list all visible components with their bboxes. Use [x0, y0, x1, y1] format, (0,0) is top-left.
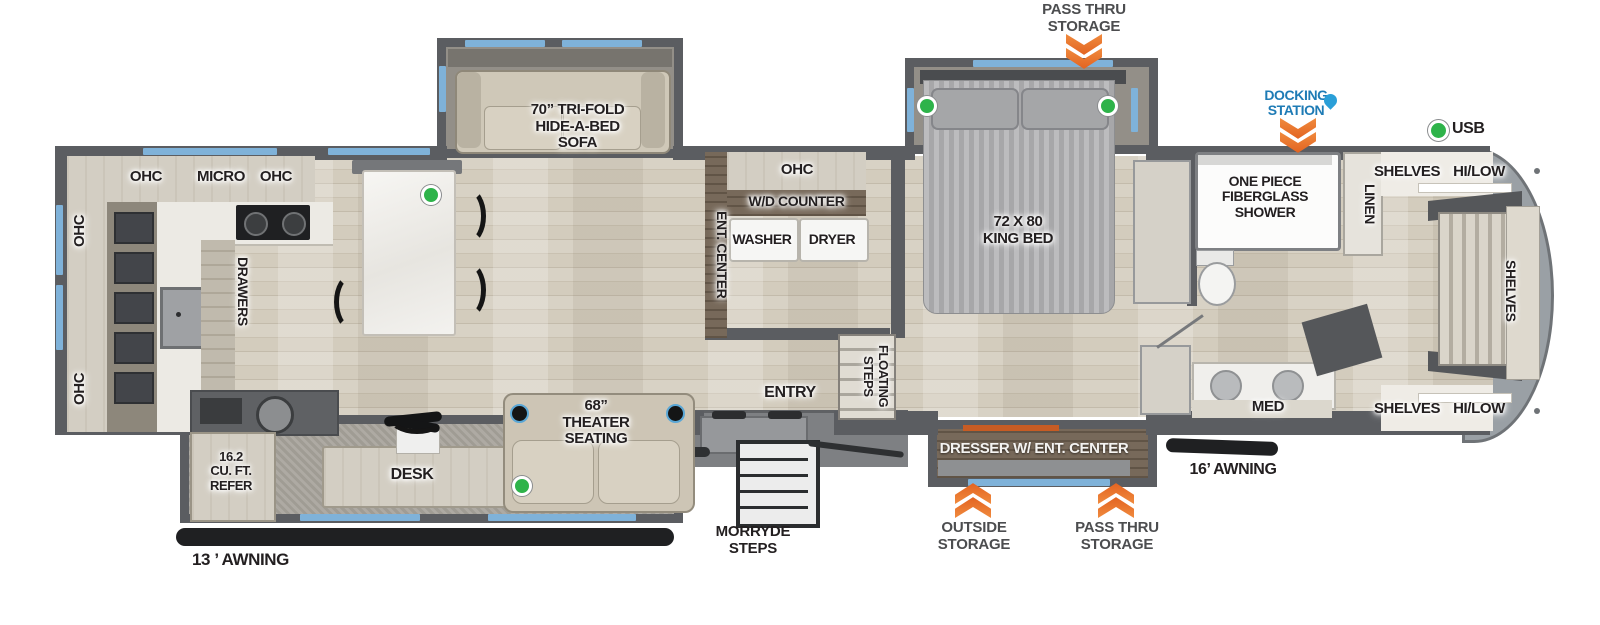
awning-16-bar: [1166, 438, 1278, 456]
drawer: [114, 212, 154, 244]
dresser-accent: [963, 425, 1059, 431]
bed-pillow-right: [1021, 88, 1109, 130]
pass-thru-top-arrow-icon: [1066, 34, 1102, 70]
usb-legend-dot: [1428, 120, 1449, 141]
bed-pillow-left: [931, 88, 1019, 130]
entry-tread: [712, 411, 746, 419]
bedroom-wardrobe-lower: [1140, 345, 1191, 415]
king-bed-label: 72 X 80 KING BED: [953, 214, 1083, 247]
step-tread: [740, 506, 808, 509]
bath-sink-left: [1210, 370, 1242, 402]
morryde-steps-cart: [736, 440, 820, 528]
awning-13-label: 13 ’ AWNING: [178, 551, 303, 570]
bar-stool: [334, 274, 368, 330]
hilow-bottom-label: HI/LOW: [1448, 401, 1510, 418]
drawers-label: DRAWERS: [226, 246, 250, 336]
cupholder-dot: [510, 404, 529, 423]
theater-label: 68” THEATER SEATING: [540, 398, 652, 448]
kitchen-ohc-right-label: OHC: [251, 169, 301, 186]
refer-label: 16.2 CU. FT. REFER: [192, 450, 270, 493]
floating-steps-label: FLOATING STEPS: [840, 336, 890, 416]
step-tread: [740, 474, 808, 477]
floorplan: 13 ’ AWNING 16’ AWNING 70” TRI-FOLD HIDE…: [0, 0, 1600, 625]
drawer: [114, 292, 154, 324]
awning-13-bar: [176, 528, 674, 546]
shower-label: ONE PIECE FIBERGLASS SHOWER: [1205, 174, 1325, 220]
drawer: [114, 332, 154, 364]
dresser-label: DRESSER W/ ENT. CENTER: [936, 441, 1132, 458]
usb-label: USB: [1452, 120, 1496, 138]
docking-station-arrow-icon: [1280, 118, 1316, 154]
shelves-mid-label: SHELVES: [1494, 248, 1518, 334]
hanging-rod-top: [1418, 183, 1512, 193]
kitchen-micro-label: MICRO: [189, 169, 253, 186]
usb-dot-bed-left: [917, 96, 937, 116]
bar-stool: [388, 400, 446, 434]
outside-storage-label: OUTSIDE STORAGE: [920, 520, 1028, 553]
shelves-top-label: SHELVES: [1372, 164, 1442, 181]
outside-storage-arrow-icon: [955, 482, 991, 518]
bar-stool: [452, 188, 486, 244]
step-tread: [740, 490, 808, 493]
cupholder-dot: [666, 404, 685, 423]
peninsula-griddle: [256, 396, 294, 434]
med-label: MED: [1238, 399, 1298, 416]
sofa-label: 70” TRI-FOLD HIDE-A-BED SOFA: [495, 102, 660, 152]
bar-stool: [452, 262, 486, 318]
kitchen-ohc-wall-upper-label: OHC: [72, 208, 102, 254]
awning-16-label: 16’ AWNING: [1178, 461, 1288, 479]
usb-dot-bed-right: [1098, 96, 1118, 116]
dryer-label: DRYER: [800, 232, 864, 247]
sofa-armrest-left: [457, 72, 481, 148]
range-burner-right: [282, 212, 306, 236]
usb-dot-island: [421, 185, 441, 205]
pass-thru-bottom-arrow-icon: [1098, 482, 1134, 518]
pass-thru-bottom-label: PASS THRU STORAGE: [1063, 520, 1171, 553]
pass-thru-top-label: PASS THRU STORAGE: [1020, 2, 1148, 35]
entry-label: ENTRY: [752, 384, 828, 402]
washer-label: WASHER: [730, 232, 794, 247]
range-burner-left: [244, 212, 268, 236]
laundry-ohc-label: OHC: [772, 162, 822, 179]
usb-dot-theater: [512, 476, 532, 496]
kitchen-sink-drain: [176, 312, 181, 317]
kitchen-sink: [160, 287, 204, 349]
ent-center-label: ENT. CENTER: [702, 190, 729, 320]
sofa-slide-backwall: [448, 49, 672, 67]
desk-label: DESK: [372, 466, 452, 484]
peninsula-cooktop: [200, 398, 242, 424]
kitchen-island: [362, 170, 456, 336]
bedroom-wardrobe-upper: [1133, 160, 1191, 304]
hilow-top-label: HI/LOW: [1448, 164, 1510, 181]
shelves-bottom-label: SHELVES: [1372, 401, 1442, 418]
dresser-front-edge: [938, 460, 1130, 476]
wd-counter-label: W/D COUNTER: [727, 194, 866, 209]
kitchen-ohc-wall-lower-label: OHC: [72, 366, 102, 412]
drawer: [114, 372, 154, 404]
morryde-steps-label: MORRYDE STEPS: [713, 524, 793, 557]
step-tread: [740, 458, 808, 461]
shower-ledge: [1198, 155, 1332, 165]
kitchen-ohc-left-label: OHC: [121, 169, 171, 186]
drawer: [114, 252, 154, 284]
entry-tread: [768, 411, 802, 419]
theater-cushion-right: [598, 440, 680, 504]
toilet-bowl: [1198, 262, 1236, 306]
